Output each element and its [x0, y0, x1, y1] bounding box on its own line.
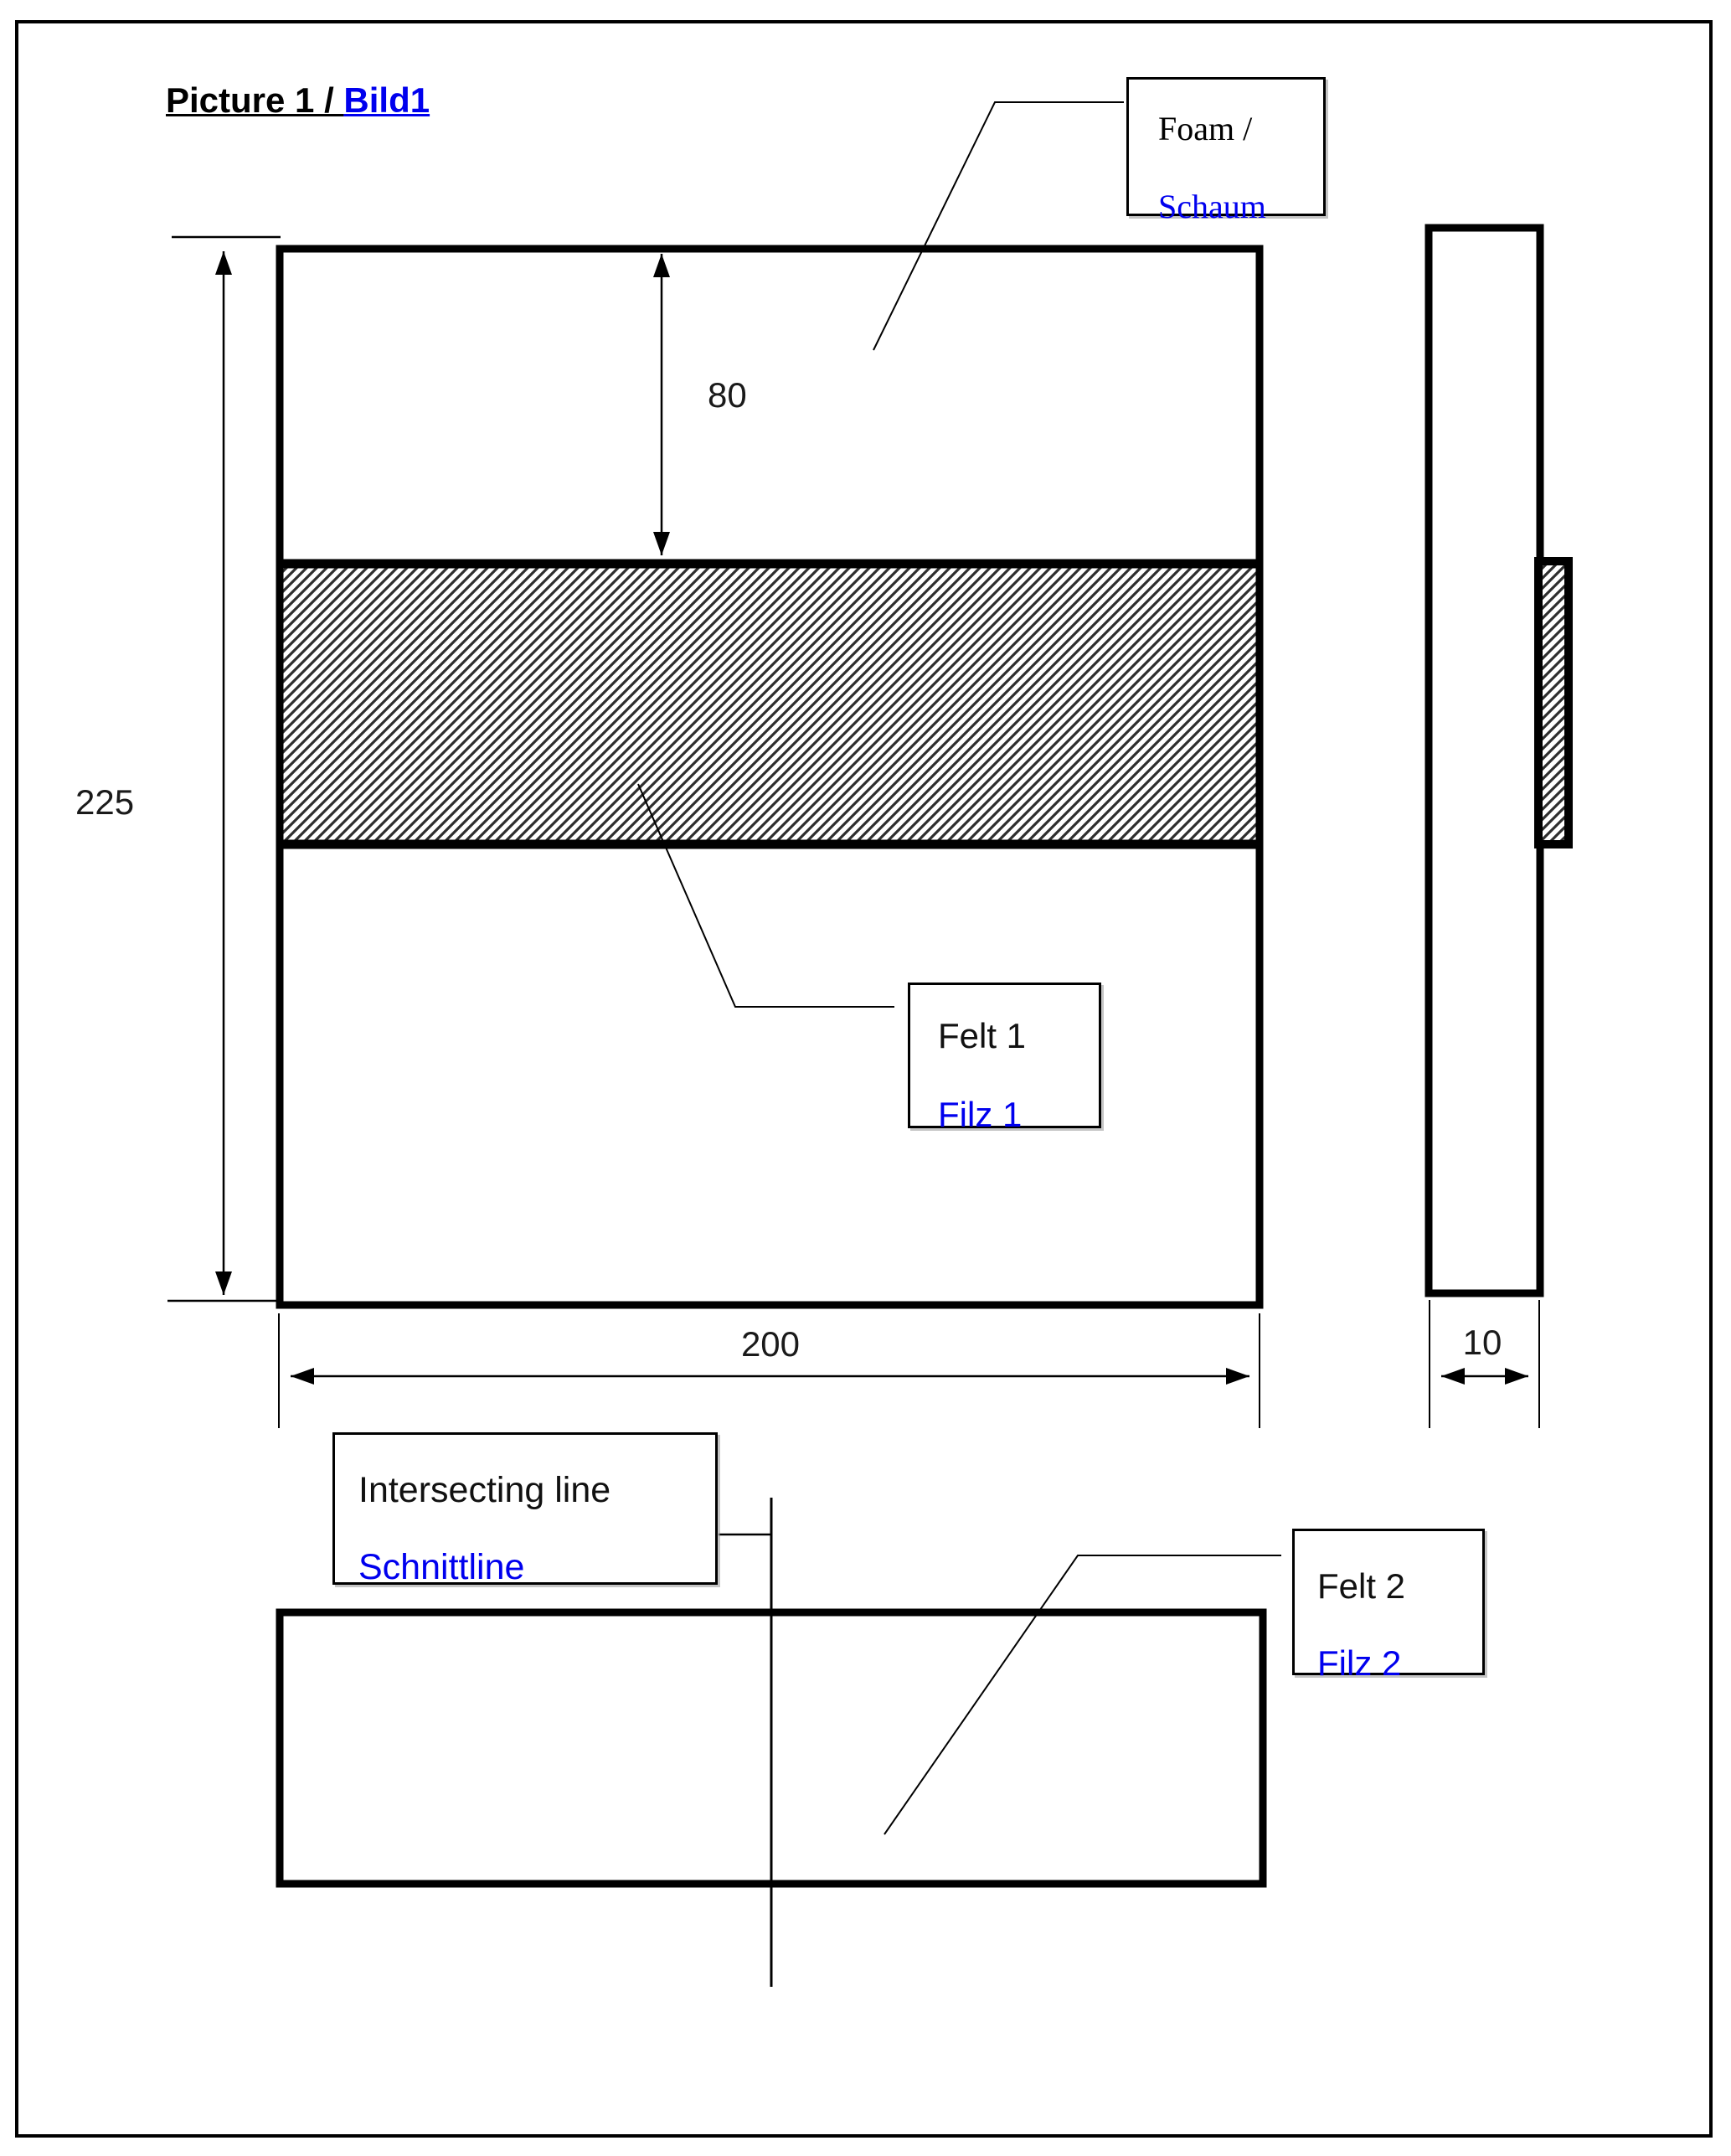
page-title: Picture 1 / Bild1	[166, 80, 430, 121]
dim-value-height: 225	[75, 782, 134, 823]
felt2-label-en: Felt 2	[1317, 1548, 1482, 1625]
side-view-felt-strip	[1538, 561, 1569, 844]
felt1-label-en: Felt 1	[938, 997, 1099, 1075]
dim-value-width: 200	[712, 1324, 829, 1364]
foam-label-box: Foam / Schaum	[1126, 77, 1326, 216]
foam-label-de: Schaum	[1158, 168, 1323, 245]
felt1-hatch-band	[280, 563, 1260, 844]
drawing-page: Picture 1 / Bild1 Foam / Schaum Felt 1 F…	[0, 0, 1731, 2156]
intersecting-line-label-box: Intersecting line Schnittline	[332, 1432, 718, 1585]
intersecting-label-en: Intersecting line	[358, 1452, 715, 1529]
foam-label-en: Foam /	[1158, 90, 1323, 168]
title-german-link[interactable]: Bild1	[343, 80, 430, 120]
side-view-rect	[1429, 228, 1540, 1293]
felt2-label-box: Felt 2 Filz 2	[1292, 1529, 1485, 1675]
felt1-label-box: Felt 1 Filz 1	[908, 983, 1101, 1128]
technical-drawing	[0, 0, 1731, 2156]
intersecting-label-de: Schnittline	[358, 1529, 715, 1606]
dim-value-thickness: 10	[1447, 1323, 1517, 1363]
felt2-label-de: Filz 2	[1317, 1625, 1482, 1702]
title-english: Picture 1 /	[166, 80, 343, 120]
felt1-label-de: Filz 1	[938, 1075, 1099, 1154]
dim-value-foam-band-offset: 80	[708, 375, 747, 415]
